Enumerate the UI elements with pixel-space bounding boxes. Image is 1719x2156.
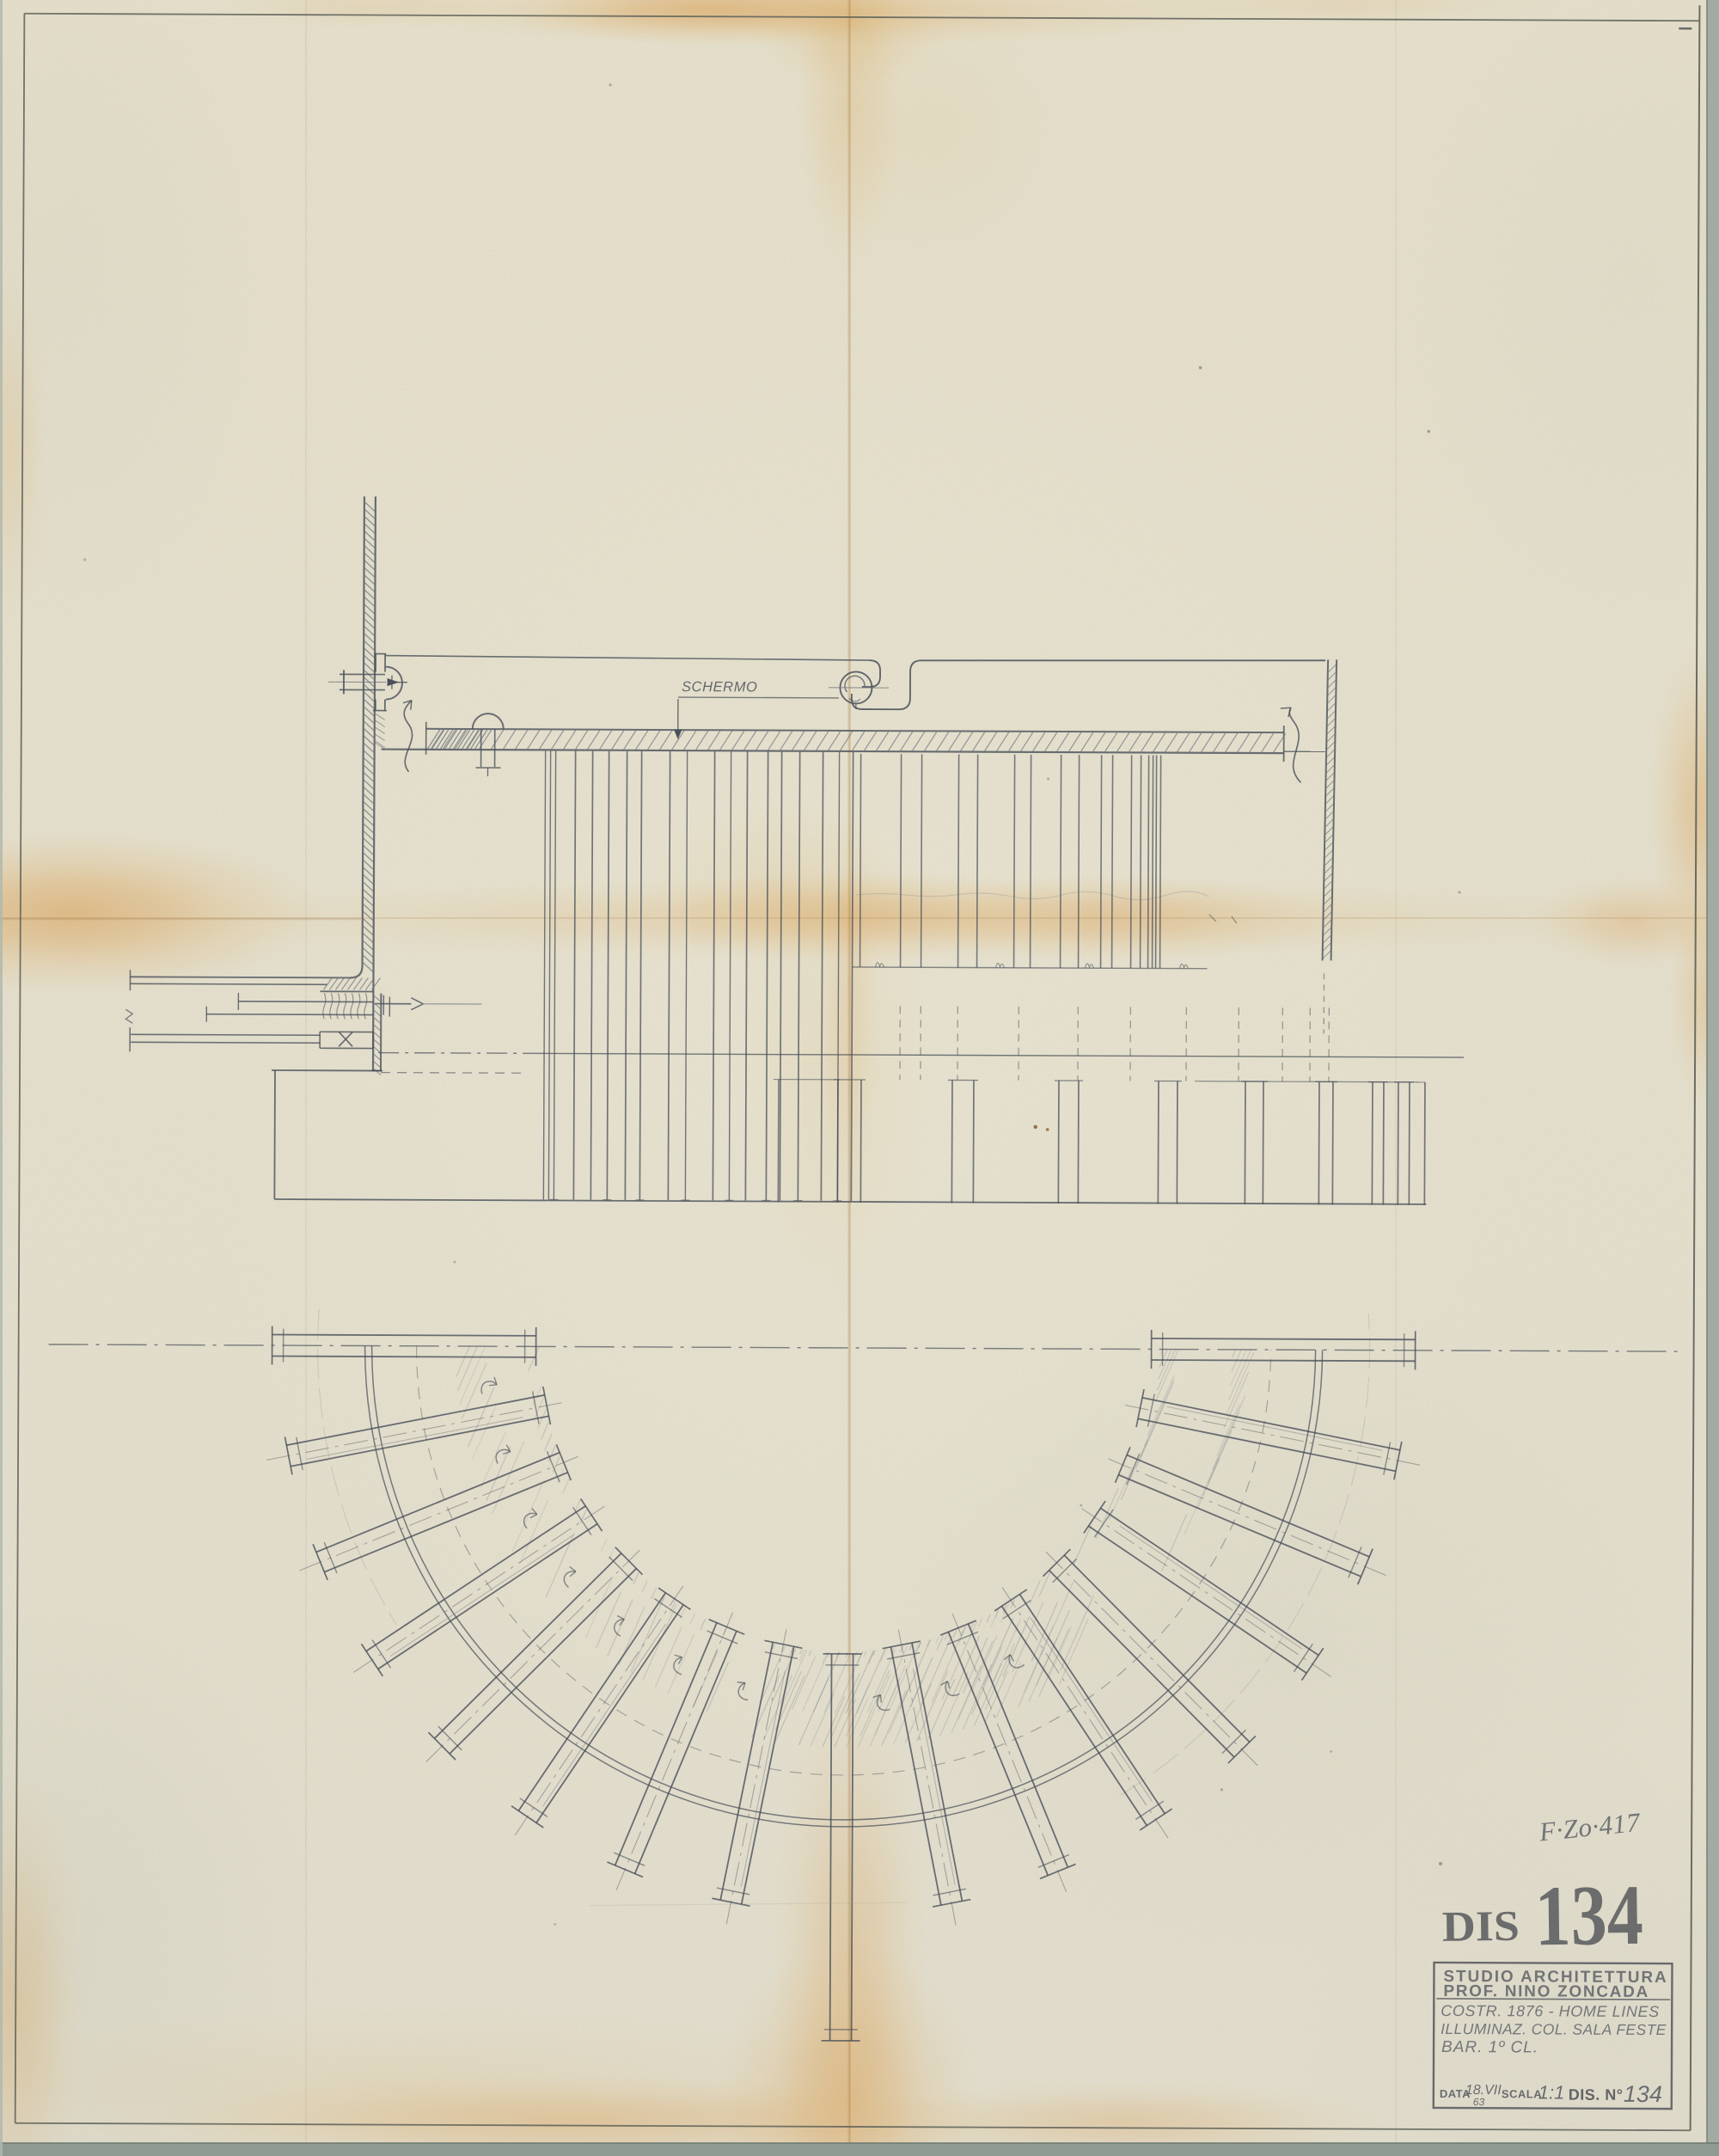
- svg-text:DIS. N°: DIS. N°: [1569, 2086, 1624, 2104]
- svg-text:DIS: DIS: [1441, 1902, 1520, 1951]
- svg-text:COSTR. 1876 - HOME LINES: COSTR. 1876 - HOME LINES: [1441, 2002, 1660, 2020]
- svg-text:SCHERMO: SCHERMO: [682, 679, 758, 695]
- svg-text:134: 134: [1534, 1867, 1643, 1964]
- svg-text:BAR. 1º CL.: BAR. 1º CL.: [1441, 2038, 1539, 2056]
- svg-text:PROF. NINO ZONCADA: PROF. NINO ZONCADA: [1443, 1982, 1649, 2001]
- svg-text:ILLUMINAZ. COL. SALA FESTE: ILLUMINAZ. COL. SALA FESTE: [1441, 2020, 1667, 2038]
- svg-text:1:1: 1:1: [1539, 2081, 1565, 2103]
- svg-text:134: 134: [1624, 2081, 1662, 2107]
- svg-text:63: 63: [1473, 2096, 1485, 2108]
- svg-text:SCALA: SCALA: [1502, 2087, 1542, 2100]
